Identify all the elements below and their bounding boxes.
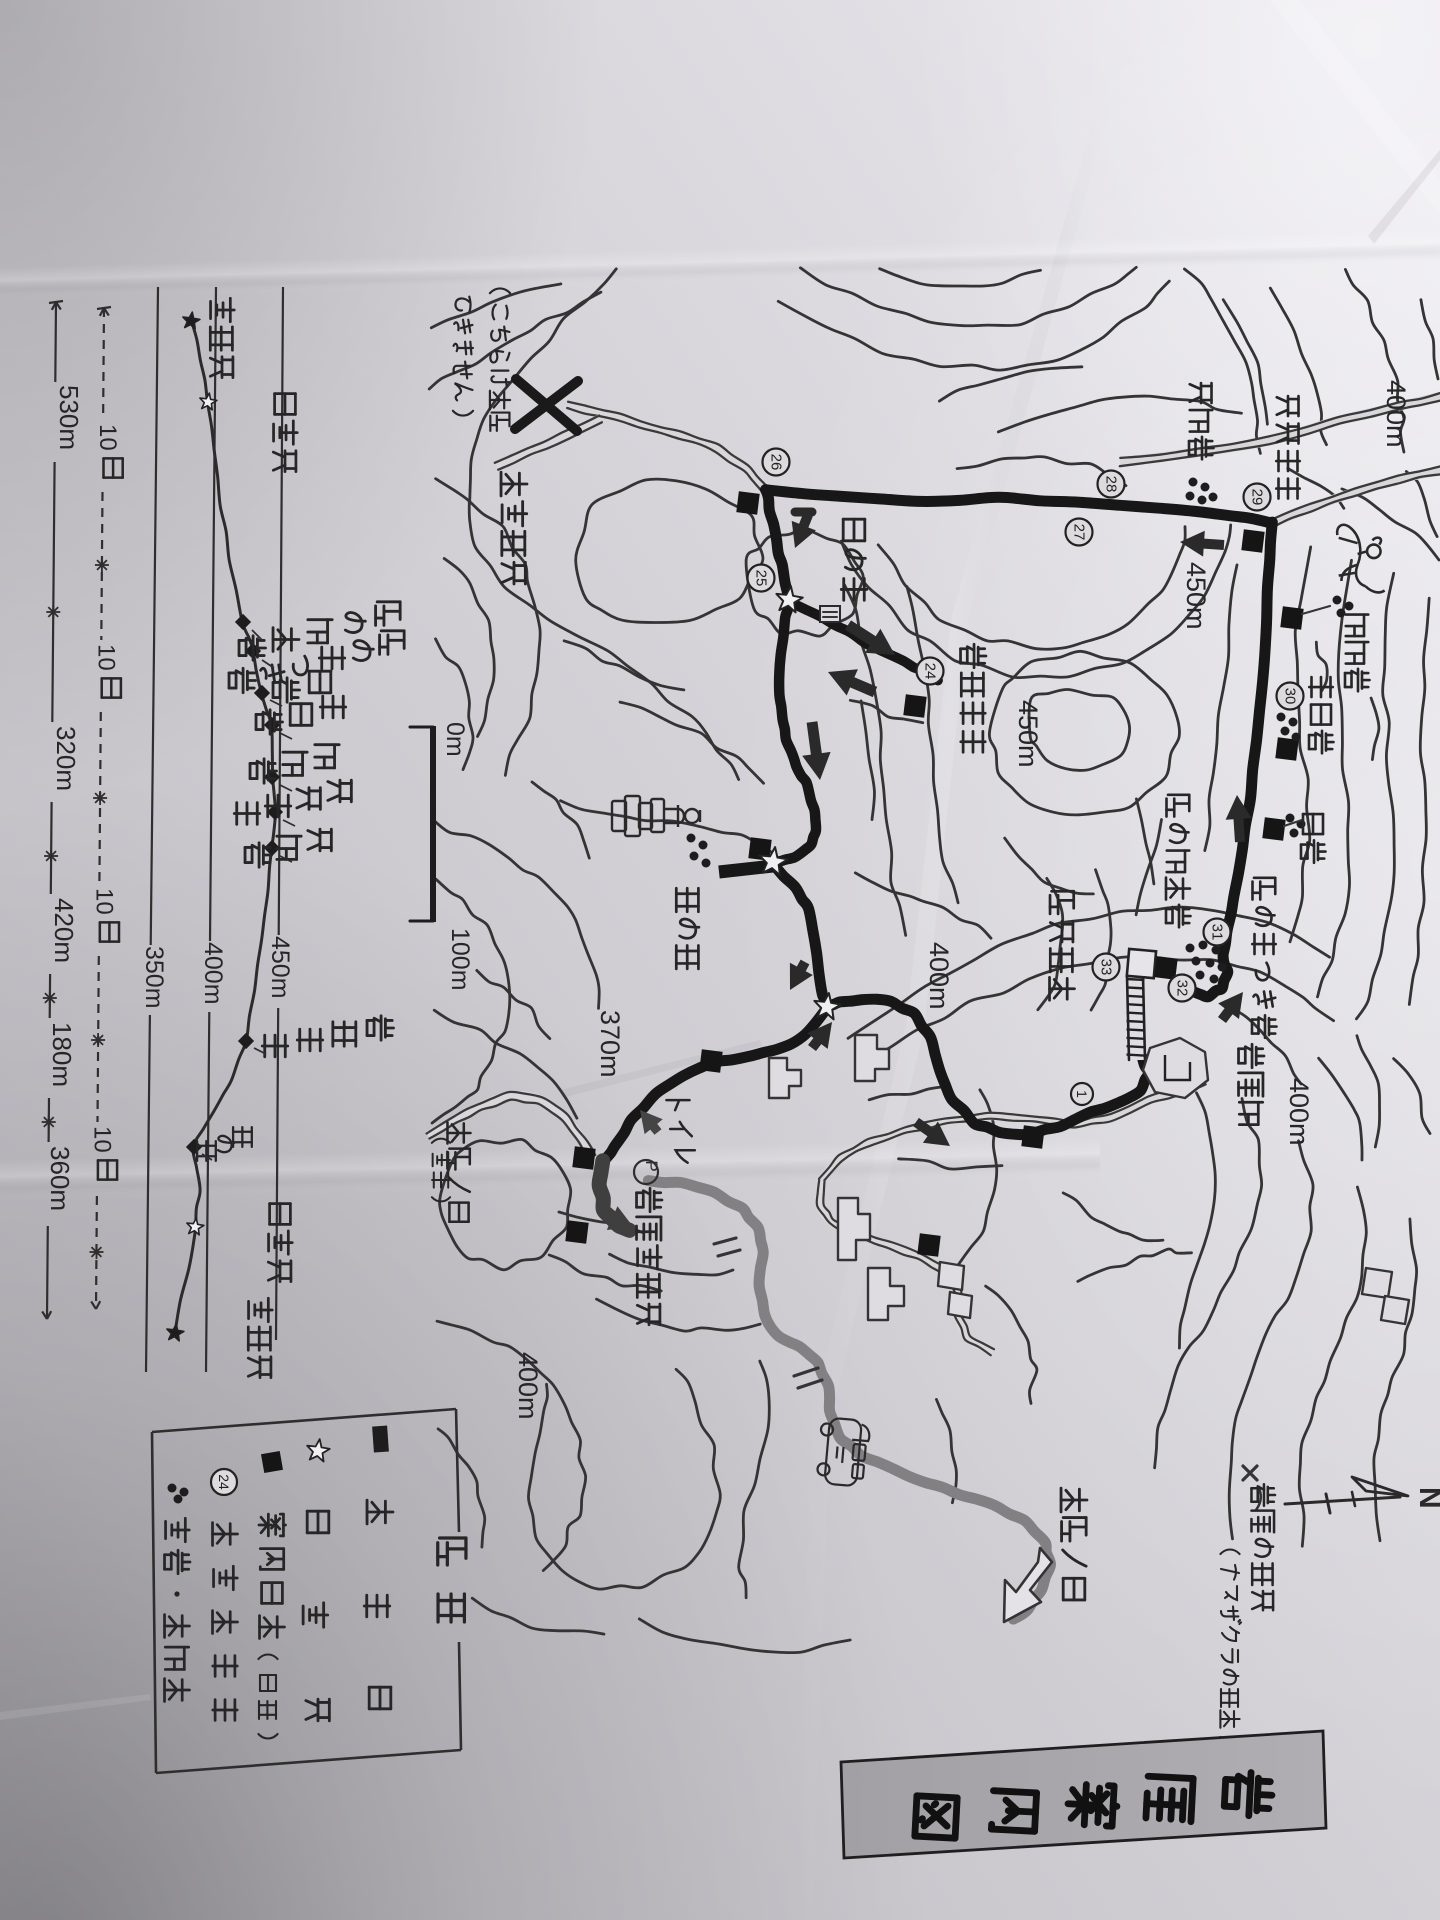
svg-text:400m: 400m [513,1352,543,1420]
svg-text:320m: 320m [51,726,81,791]
svg-text:10: 10 [89,1126,116,1153]
svg-text:450m: 450m [1181,562,1211,630]
svg-text:30: 30 [1282,688,1299,705]
svg-text:450m: 450m [1013,700,1043,768]
svg-text:P: P [642,1160,661,1171]
svg-text:100m: 100m [446,928,474,991]
svg-text:28: 28 [1103,476,1120,493]
svg-text:0m: 0m [441,722,469,757]
svg-text:27: 27 [1071,524,1088,541]
svg-text:N: N [1413,1487,1440,1509]
svg-text:420m: 420m [49,898,79,963]
svg-text:33: 33 [1098,959,1115,976]
svg-text:24: 24 [216,1474,232,1490]
svg-text:180m: 180m [47,1022,77,1087]
svg-text:25: 25 [753,570,770,587]
svg-text:350m: 350m [140,946,168,1009]
svg-text:24: 24 [922,663,939,680]
svg-text:32: 32 [1174,980,1191,997]
svg-text:31: 31 [1209,924,1226,941]
svg-text:1: 1 [1074,1090,1090,1098]
svg-text:450m: 450m [266,936,294,999]
svg-text:530m: 530m [54,385,84,450]
svg-text:400m: 400m [924,942,954,1010]
svg-text:370m: 370m [595,1010,625,1078]
svg-text:10: 10 [92,644,119,671]
svg-text:26: 26 [768,454,785,471]
svg-text:400m: 400m [1381,380,1411,448]
svg-text:400m: 400m [199,942,227,1005]
svg-text:360m: 360m [45,1146,75,1211]
svg-text:10: 10 [90,888,117,915]
svg-text:400m: 400m [1284,1078,1314,1146]
svg-text:29: 29 [1249,489,1266,506]
svg-text:10: 10 [94,424,121,451]
